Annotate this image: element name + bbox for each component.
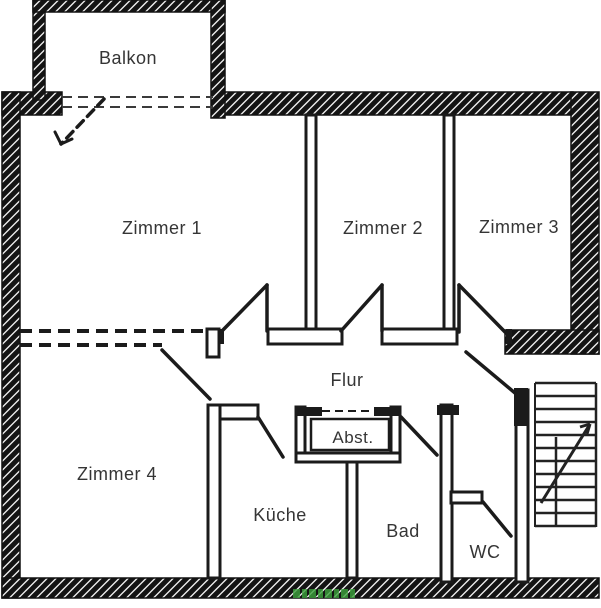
wall-kueche-bad xyxy=(347,455,357,578)
balcony-wall-right xyxy=(211,0,225,118)
room-label-bad: Bad xyxy=(386,521,420,541)
room-label-zimmer4: Zimmer 4 xyxy=(77,464,157,484)
door-wc xyxy=(483,502,511,536)
room-label-abst: Abst. xyxy=(332,428,373,447)
room-label-kueche: Küche xyxy=(253,505,307,525)
wall-z2-z3 xyxy=(444,115,454,334)
room-label-balkon: Balkon xyxy=(99,48,157,68)
balcony-wall-left xyxy=(33,0,45,100)
floor-plan: Balkon Zimmer 1 Zimmer 2 Zimmer 3 Flur Z… xyxy=(0,0,601,608)
wall-z1-z2 xyxy=(306,115,316,334)
door-zimmer1 xyxy=(222,285,267,331)
balcony-wall-top xyxy=(33,0,225,12)
wall-jog xyxy=(207,329,219,357)
wall-wc-top xyxy=(451,492,482,503)
door-bad xyxy=(401,417,437,455)
outer-wall-left xyxy=(2,92,20,598)
room-label-flur: Flur xyxy=(331,370,364,390)
door-kueche xyxy=(258,417,283,457)
room-label-zimmer2: Zimmer 2 xyxy=(343,218,423,238)
outer-wall-bottom xyxy=(2,578,599,598)
wall-bad-jamb xyxy=(437,405,459,415)
wall-z4-kueche xyxy=(208,405,220,578)
wall-flur-north-d xyxy=(506,329,512,344)
floor-plan-drawing: Balkon Zimmer 1 Zimmer 2 Zimmer 3 Flur Z… xyxy=(0,0,601,608)
balcony-window xyxy=(62,97,213,107)
outer-wall-right xyxy=(571,92,599,354)
outer-wall-top xyxy=(213,92,573,115)
door-zimmer3 xyxy=(459,285,505,332)
door-entrance xyxy=(466,352,515,393)
wall-flur-north-b xyxy=(268,329,342,344)
room-label-wc: WC xyxy=(470,542,501,562)
door-zimmer4 xyxy=(162,350,210,399)
wall-flur-north-c xyxy=(382,329,457,344)
entrance-wall-band xyxy=(505,330,599,354)
room-label-zimmer1: Zimmer 1 xyxy=(122,218,202,238)
staircase xyxy=(535,383,596,527)
door-zimmer2 xyxy=(341,285,382,331)
room-label-zimmer3: Zimmer 3 xyxy=(479,217,559,237)
